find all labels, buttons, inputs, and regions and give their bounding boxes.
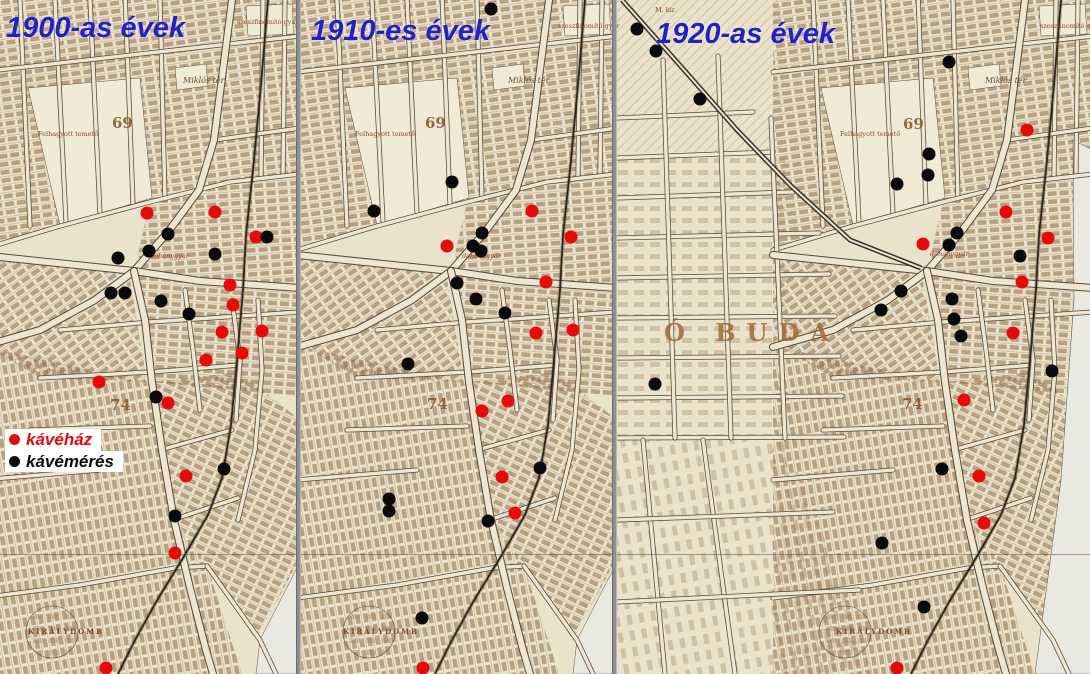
map-legend: kávéház kávémérés [5,429,123,472]
map-panel-1920s [617,0,1090,674]
map-fold-line [0,554,1090,555]
historic-map-comparison: 1900-as évek 1910-es évek 1920-as évek k… [0,0,1090,674]
panel-title-1910s: 1910-es évek [311,15,490,48]
map-panel-1910s [301,0,612,674]
panel-divider [612,0,617,674]
kavemeres-dot-icon [9,456,20,467]
panel-divider [296,0,301,674]
kavehaz-dot-icon [9,434,20,445]
legend-item-kavehaz: kávéház [5,429,101,451]
map-panel-1900s [0,0,296,674]
legend-label-kavehaz: kávéház [26,430,92,450]
panel-title-1900s: 1900-as évek [6,12,185,45]
legend-item-kavemeres: kávémérés [5,451,123,473]
legend-label-kavemeres: kávémérés [26,452,114,472]
panel-title-1920s: 1920-as évek [656,18,835,51]
